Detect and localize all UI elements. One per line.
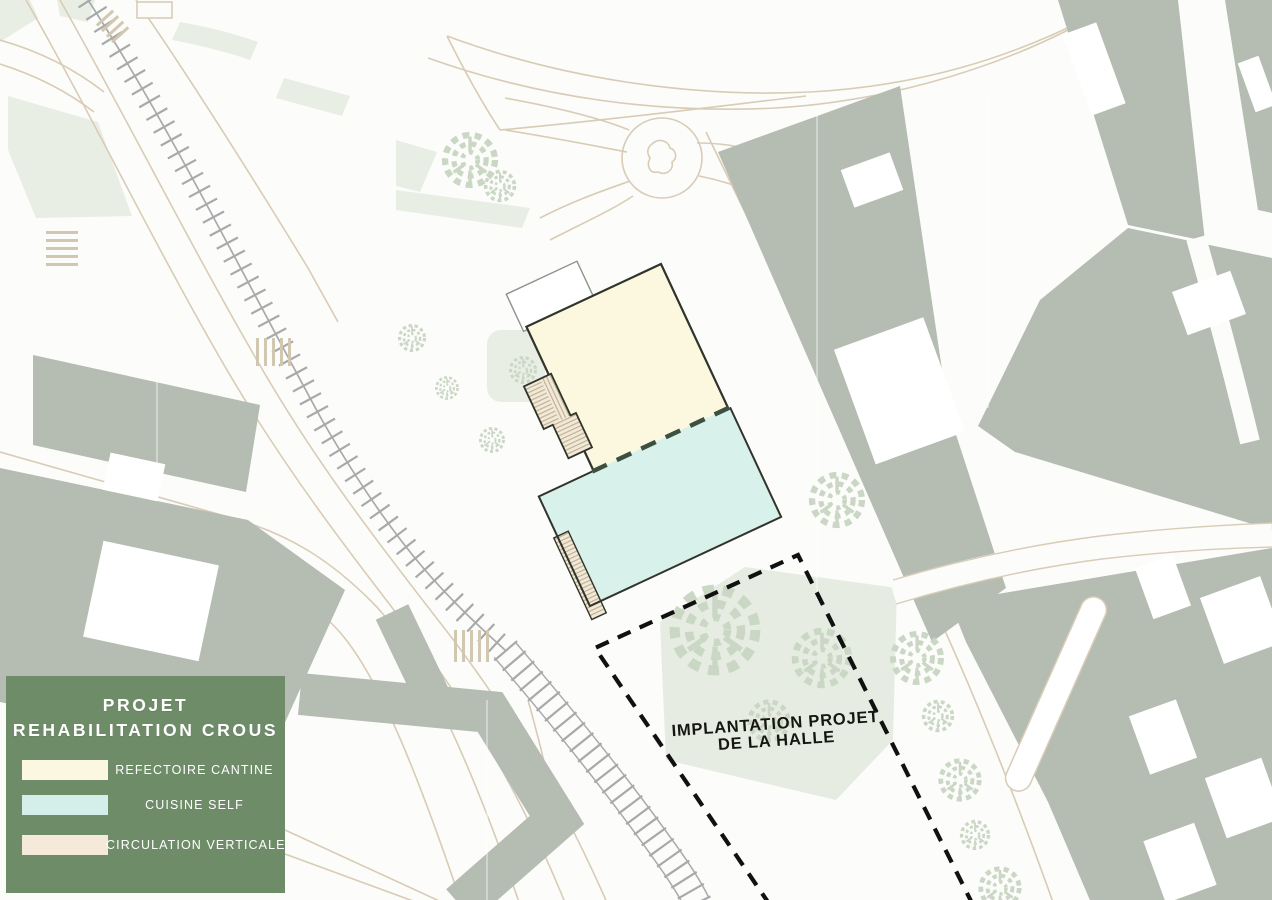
refectoire-swatch (22, 760, 108, 780)
legend-item-label: CUISINE SELF (106, 795, 283, 815)
legend-item-refectoire: REFECTOIRE CANTINE (6, 760, 285, 780)
cuisine-swatch (22, 795, 108, 815)
legend-item-cuisine: CUISINE SELF (6, 795, 285, 815)
legend-item-circulation: CIRCULATION VERTICALE (6, 835, 285, 855)
legend-title: PROJET REHABILITATION CROUS (6, 676, 285, 743)
legend-title-line1: PROJET (6, 693, 285, 718)
legend-panel: PROJET REHABILITATION CROUS REFECTOIRE C… (6, 676, 285, 893)
legend-item-label: CIRCULATION VERTICALE (106, 835, 283, 855)
circulation-swatch (22, 835, 108, 855)
legend-title-line2: REHABILITATION CROUS (6, 718, 285, 743)
legend-item-label: REFECTOIRE CANTINE (106, 760, 283, 780)
site-plan-page: PROJET REHABILITATION CROUS REFECTOIRE C… (0, 0, 1272, 900)
